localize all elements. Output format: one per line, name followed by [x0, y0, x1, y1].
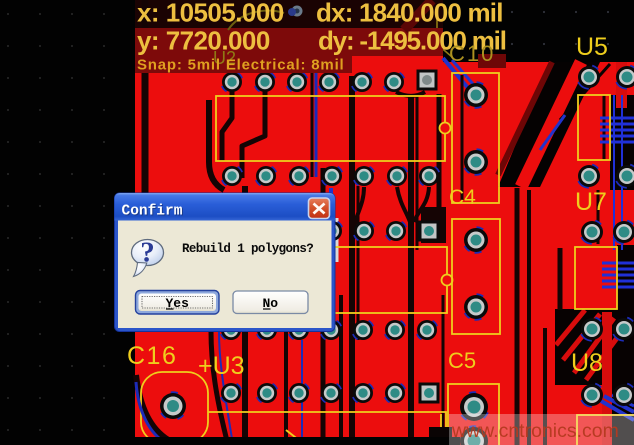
svg-text:?: ?: [140, 237, 155, 269]
svg-text:dx: 1840.000 mil: dx: 1840.000 mil: [316, 0, 503, 28]
svg-text:+U3: +U3: [198, 352, 245, 380]
svg-text:U5: U5: [576, 33, 608, 61]
svg-text:Snap: 5mil Electrical: 8mil: Snap: 5mil Electrical: 8mil: [137, 57, 345, 74]
svg-text:U8: U8: [571, 349, 603, 377]
svg-text:y: 7720.000: y: 7720.000: [137, 26, 270, 56]
svg-text:C16: C16: [127, 342, 177, 370]
svg-text:www.cntronics.com: www.cntronics.com: [451, 420, 619, 442]
svg-text:U7: U7: [575, 188, 607, 216]
svg-text:C5: C5: [448, 348, 476, 373]
svg-text:Rebuild 1 polygons?: Rebuild 1 polygons?: [182, 242, 313, 256]
svg-text:C10: C10: [449, 41, 495, 66]
svg-text:C4: C4: [449, 186, 476, 209]
svg-text:x: 10505.000: x: 10505.000: [137, 0, 284, 28]
svg-text:Confirm: Confirm: [122, 204, 183, 220]
